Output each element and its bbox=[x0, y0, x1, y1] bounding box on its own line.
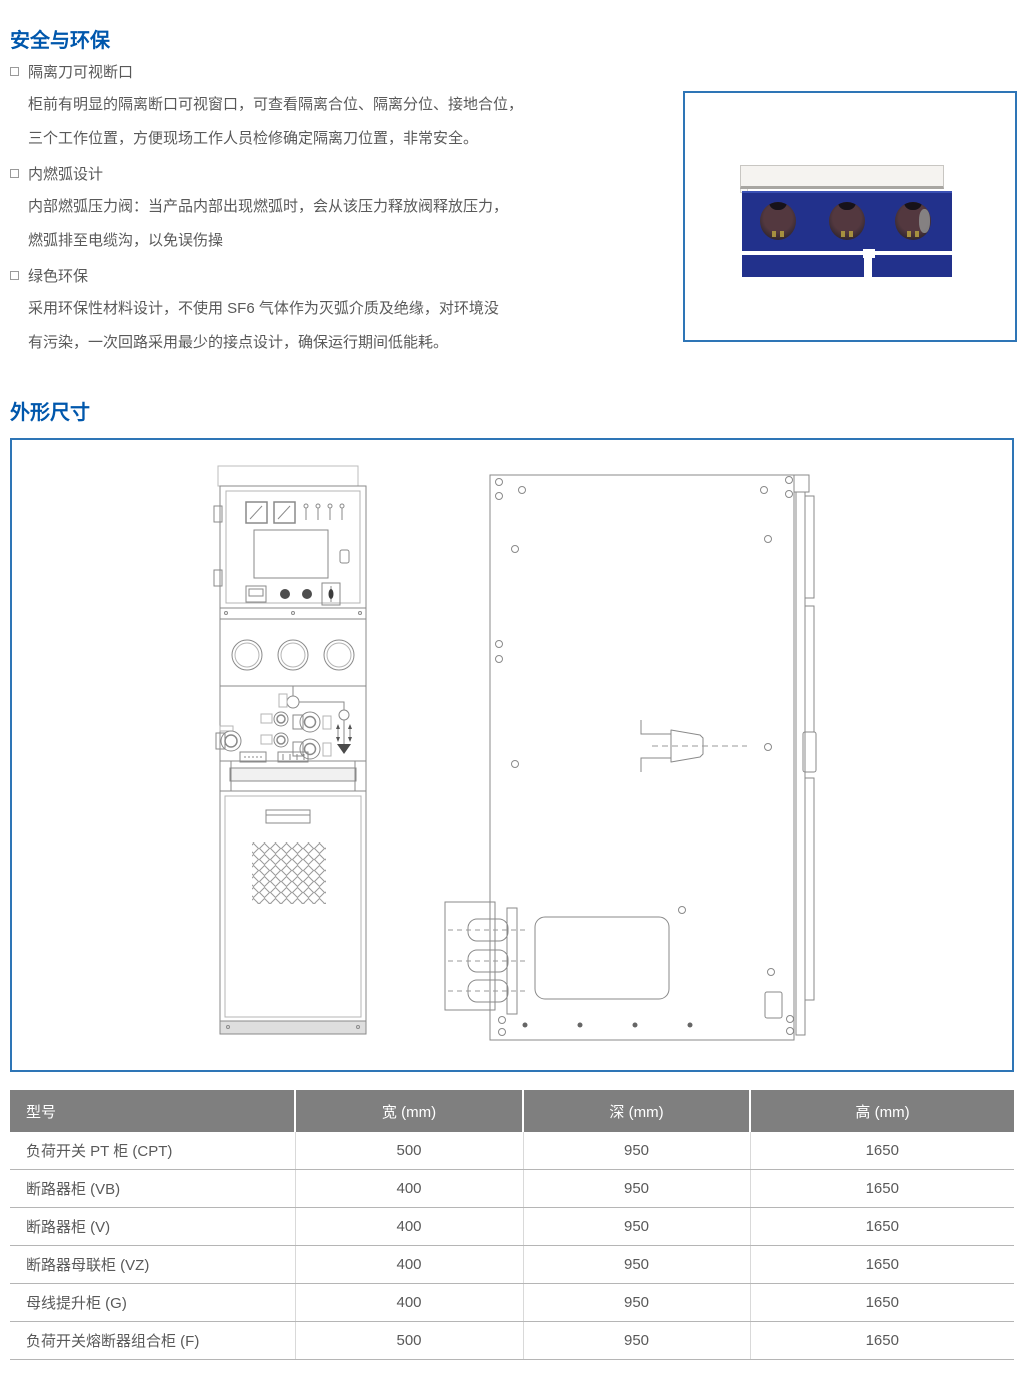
bullet-title-text: 隔离刀可视断口 bbox=[28, 61, 133, 82]
square-bullet-icon bbox=[10, 67, 19, 76]
cell-height: 1650 bbox=[750, 1322, 1014, 1360]
table-row: 母线提升柜 (G) 400 950 1650 bbox=[10, 1284, 1014, 1322]
cell-model: 断路器柜 (VB) bbox=[10, 1170, 295, 1208]
cell-depth: 950 bbox=[523, 1246, 750, 1284]
mounting-holes bbox=[496, 477, 794, 1036]
bullet-paragraph-line: 内部燃弧压力阀：当产品内部出现燃弧时，会从该压力释放阀释放压力， bbox=[10, 190, 630, 224]
bullet-title-text: 绿色环保 bbox=[28, 265, 88, 286]
table-row: 断路器母联柜 (VZ) 400 950 1650 bbox=[10, 1246, 1014, 1284]
cell-depth: 950 bbox=[523, 1322, 750, 1360]
document-page: 安全与环保 隔离刀可视断口 柜前有明显的隔离断口可视窗口，可查看隔离合位、隔离分… bbox=[0, 0, 1024, 1383]
square-bullet-icon bbox=[10, 271, 19, 280]
cell-model: 断路器柜 (V) bbox=[10, 1208, 295, 1246]
dimensions-table: 型号 宽 (mm) 深 (mm) 高 (mm) 负荷开关 PT 柜 (CPT) … bbox=[10, 1090, 1014, 1360]
safety-bullet-list: 隔离刀可视断口 柜前有明显的隔离断口可视窗口，可查看隔离合位、隔离分位、接地合位… bbox=[10, 54, 630, 360]
square-bullet-icon bbox=[10, 169, 19, 178]
viewing-window-icon bbox=[760, 202, 796, 240]
cell-width: 400 bbox=[295, 1284, 523, 1322]
bullet-paragraph-line: 燃弧排至电缆沟，以免误伤操 bbox=[10, 224, 630, 258]
dimension-drawings-frame bbox=[10, 438, 1014, 1072]
front-view-drawing bbox=[214, 466, 366, 1034]
header-width: 宽 (mm) bbox=[295, 1090, 523, 1132]
cell-height: 1650 bbox=[750, 1132, 1014, 1170]
bullet-paragraph-line: 三个工作位置，方便现场工作人员检修确定隔离刀位置，非常安全。 bbox=[10, 122, 630, 156]
photo-lower-strip-right bbox=[872, 255, 952, 277]
cabinet-outline-drawing bbox=[12, 440, 1012, 1070]
indicator-lamps bbox=[304, 504, 344, 520]
cell-height: 1650 bbox=[750, 1170, 1014, 1208]
viewing-window-icon bbox=[829, 202, 865, 240]
cell-depth: 950 bbox=[523, 1132, 750, 1170]
cell-width: 400 bbox=[295, 1170, 523, 1208]
bullet-title: 隔离刀可视断口 bbox=[10, 54, 630, 88]
cell-depth: 950 bbox=[523, 1208, 750, 1246]
viewing-window-icon bbox=[895, 202, 931, 240]
window-glint bbox=[919, 209, 930, 233]
bullet-paragraph-line: 有污染，一次回路采用最少的接点设计，确保运行期间低能耗。 bbox=[10, 326, 630, 360]
list-item: 绿色环保 采用环保性材料设计，不使用 SF6 气体作为灭弧介质及绝缘，对环境没 … bbox=[10, 258, 630, 360]
cell-model: 断路器母联柜 (VZ) bbox=[10, 1246, 295, 1284]
cell-model: 负荷开关 PT 柜 (CPT) bbox=[10, 1132, 295, 1170]
photo-navy-panel bbox=[742, 191, 952, 251]
table-header-row: 型号 宽 (mm) 深 (mm) 高 (mm) bbox=[10, 1090, 1014, 1132]
cell-height: 1650 bbox=[750, 1284, 1014, 1322]
cell-depth: 950 bbox=[523, 1284, 750, 1322]
photo-lower-strip-left bbox=[742, 255, 864, 277]
window-shade bbox=[904, 202, 922, 210]
header-model: 型号 bbox=[10, 1090, 295, 1132]
product-photo bbox=[740, 165, 954, 289]
bullet-title: 绿色环保 bbox=[10, 258, 630, 292]
cell-width: 500 bbox=[295, 1322, 523, 1360]
list-item: 隔离刀可视断口 柜前有明显的隔离断口可视窗口，可查看隔离合位、隔离分位、接地合位… bbox=[10, 54, 630, 156]
window-shade bbox=[769, 202, 787, 210]
table-row: 断路器柜 (VB) 400 950 1650 bbox=[10, 1170, 1014, 1208]
bullet-title-text: 内燃弧设计 bbox=[28, 163, 103, 184]
header-depth: 深 (mm) bbox=[523, 1090, 750, 1132]
cell-width: 500 bbox=[295, 1132, 523, 1170]
header-height: 高 (mm) bbox=[750, 1090, 1014, 1132]
bullet-paragraph-line: 采用环保性材料设计，不使用 SF6 气体作为灭弧介质及绝缘，对环境没 bbox=[10, 292, 630, 326]
table-row: 负荷开关熔断器组合柜 (F) 500 950 1650 bbox=[10, 1322, 1014, 1360]
bullet-paragraph-line: 柜前有明显的隔离断口可视窗口，可查看隔离合位、隔离分位、接地合位， bbox=[10, 88, 630, 122]
cell-height: 1650 bbox=[750, 1208, 1014, 1246]
section-title-dimensions: 外形尺寸 bbox=[10, 396, 90, 425]
section-title-safety: 安全与环保 bbox=[10, 24, 110, 53]
product-photo-frame bbox=[683, 91, 1017, 342]
window-shade bbox=[838, 202, 856, 210]
cell-width: 400 bbox=[295, 1246, 523, 1284]
table-row: 负荷开关 PT 柜 (CPT) 500 950 1650 bbox=[10, 1132, 1014, 1170]
photo-lid bbox=[740, 165, 944, 189]
cell-model: 负荷开关熔断器组合柜 (F) bbox=[10, 1322, 295, 1360]
cell-depth: 950 bbox=[523, 1170, 750, 1208]
photo-divider-notch bbox=[863, 249, 875, 258]
list-item: 内燃弧设计 内部燃弧压力阀：当产品内部出现燃弧时，会从该压力释放阀释放压力， 燃… bbox=[10, 156, 630, 258]
cell-height: 1650 bbox=[750, 1246, 1014, 1284]
bullet-title: 内燃弧设计 bbox=[10, 156, 630, 190]
side-view-drawing bbox=[445, 475, 816, 1040]
table-row: 断路器柜 (V) 400 950 1650 bbox=[10, 1208, 1014, 1246]
cell-width: 400 bbox=[295, 1208, 523, 1246]
cell-model: 母线提升柜 (G) bbox=[10, 1284, 295, 1322]
